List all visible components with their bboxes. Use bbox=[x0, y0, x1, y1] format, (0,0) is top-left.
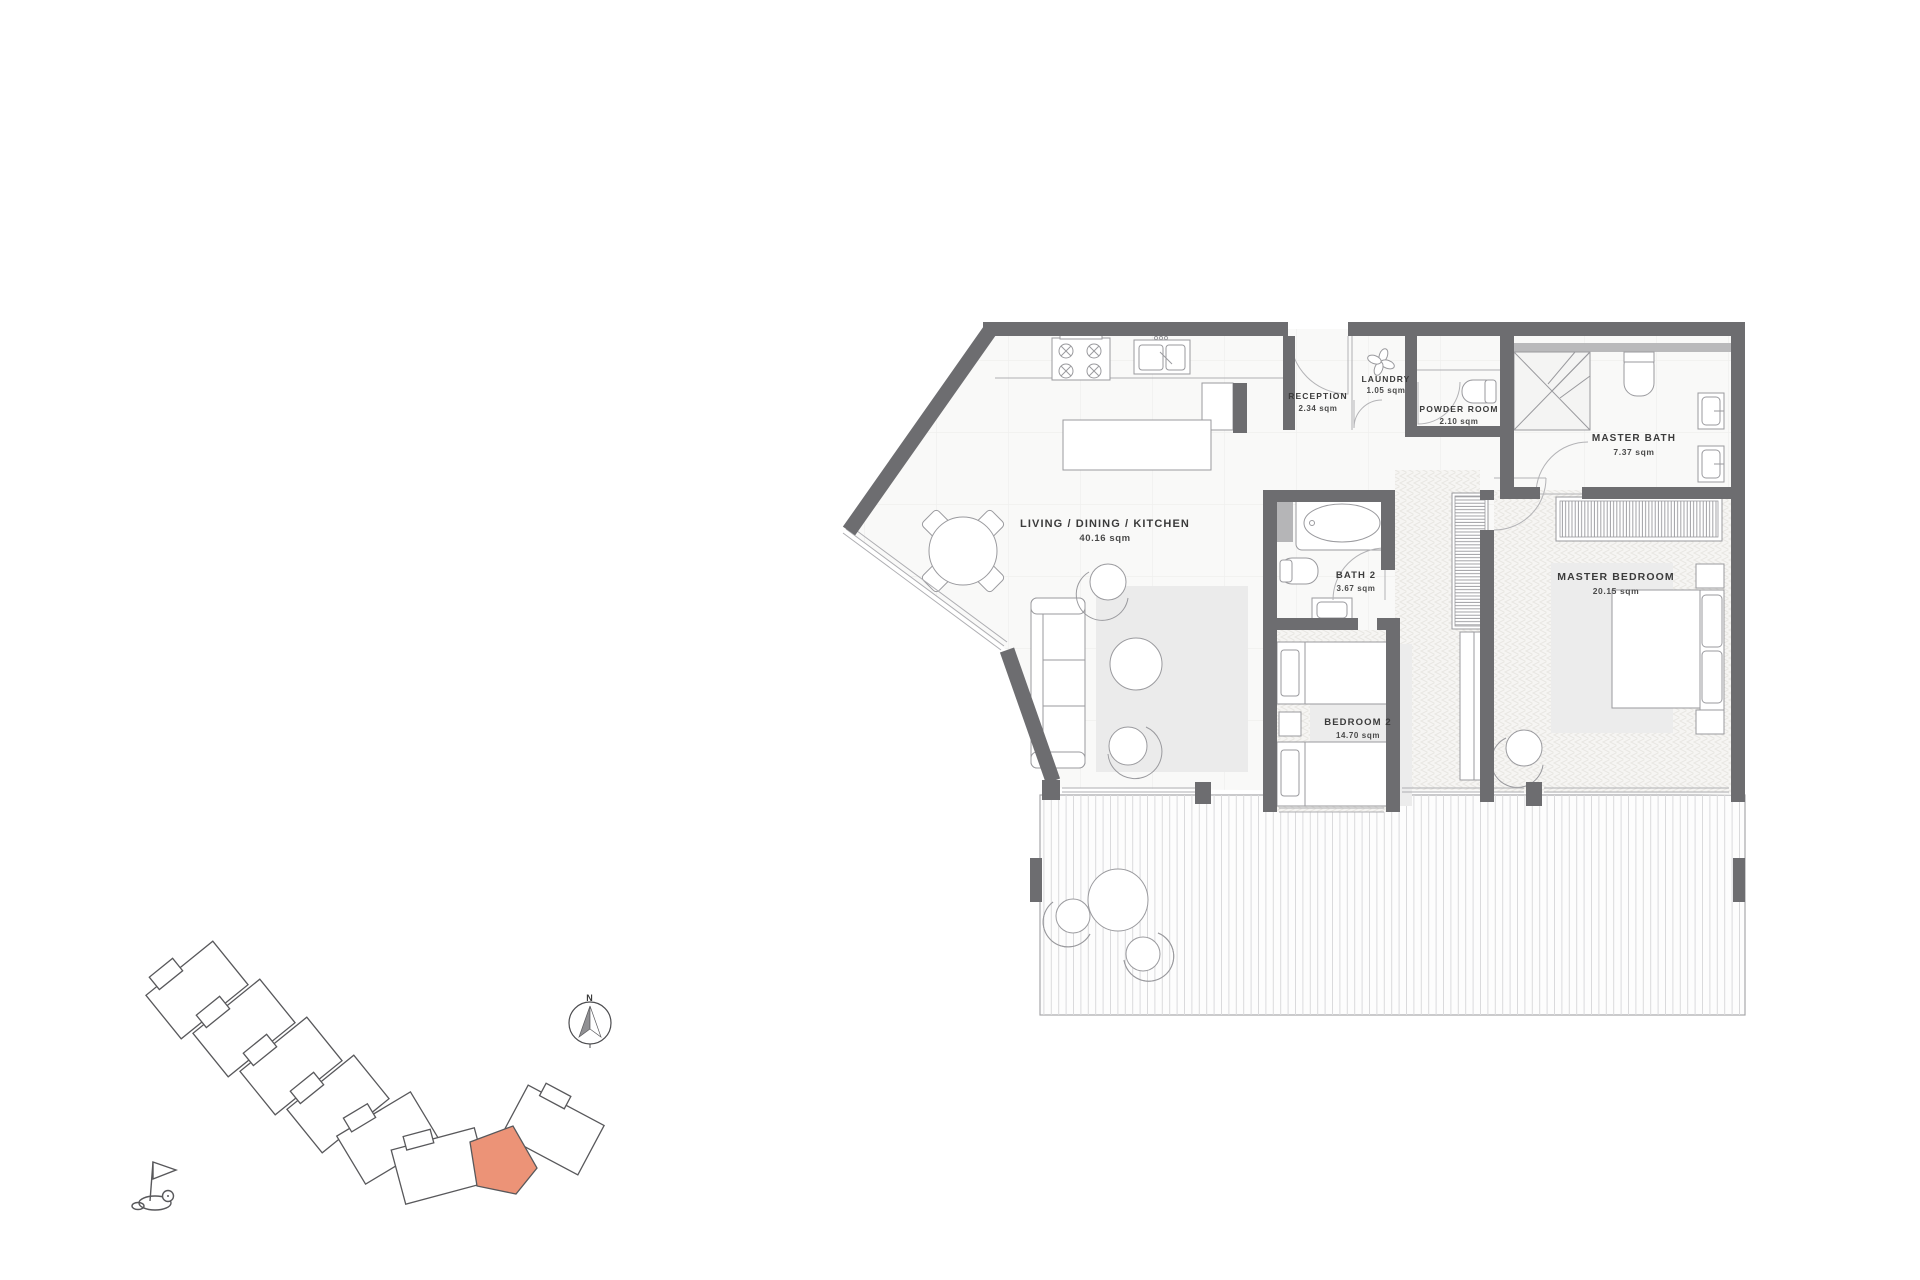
shower bbox=[1514, 352, 1590, 430]
coffee-table-round bbox=[1110, 638, 1162, 690]
golf-flag-icon bbox=[132, 1162, 176, 1210]
kitchen-sink bbox=[1134, 336, 1190, 374]
toilet bbox=[1462, 380, 1496, 403]
dining-table bbox=[929, 517, 997, 585]
kitchen-island bbox=[1063, 420, 1211, 470]
room-area-master-bedroom: 20.15 sqm bbox=[1593, 586, 1640, 596]
master-bed bbox=[1612, 590, 1724, 710]
room-label-laundry: LAUNDRY bbox=[1362, 374, 1411, 384]
room-area-living: 40.16 sqm bbox=[1079, 533, 1130, 544]
toilet bbox=[1280, 558, 1318, 584]
terrace-table bbox=[1088, 869, 1148, 931]
room-area-bath2: 3.67 sqm bbox=[1336, 584, 1375, 593]
room-area-powder: 2.10 sqm bbox=[1439, 417, 1478, 426]
twin-bed-2 bbox=[1277, 742, 1389, 806]
nightstand bbox=[1696, 564, 1724, 588]
powder-room-fixtures bbox=[1462, 380, 1496, 403]
nightstand bbox=[1696, 710, 1724, 734]
room-label-master-bath: MASTER BATH bbox=[1592, 433, 1676, 444]
room-area-master-bath: 7.37 sqm bbox=[1613, 447, 1654, 457]
kitchen-stove bbox=[1052, 334, 1110, 380]
bath-sink bbox=[1698, 446, 1724, 482]
room-label-powder: POWDER ROOM bbox=[1419, 404, 1498, 414]
room-area-reception: 2.34 sqm bbox=[1298, 404, 1337, 413]
room-area-bedroom2: 14.70 sqm bbox=[1336, 731, 1380, 740]
room-label-bedroom2: BEDROOM 2 bbox=[1324, 717, 1391, 728]
room-label-bath2: BATH 2 bbox=[1336, 570, 1376, 581]
room-label-reception: RECEPTION bbox=[1288, 391, 1348, 401]
bath2-niche bbox=[1277, 500, 1293, 542]
bath-sink bbox=[1698, 393, 1724, 429]
site-plan bbox=[138, 932, 608, 1204]
twin-bed-1 bbox=[1277, 642, 1389, 704]
compass-icon: N bbox=[569, 993, 611, 1048]
wardrobe bbox=[1556, 497, 1722, 541]
mirror-ledge bbox=[1514, 343, 1731, 352]
terrace bbox=[1040, 795, 1745, 1015]
room-area-laundry: 1.05 sqm bbox=[1366, 386, 1405, 395]
dining-set bbox=[921, 509, 1006, 594]
nightstand bbox=[1279, 712, 1301, 736]
room-label-master-bedroom: MASTER BEDROOM bbox=[1557, 571, 1674, 583]
floor-plan-page: LIVING / DINING / KITCHEN 40.16 sqm RECE… bbox=[0, 0, 1920, 1280]
toilet bbox=[1624, 352, 1654, 396]
room-label-living: LIVING / DINING / KITCHEN bbox=[1020, 518, 1190, 530]
